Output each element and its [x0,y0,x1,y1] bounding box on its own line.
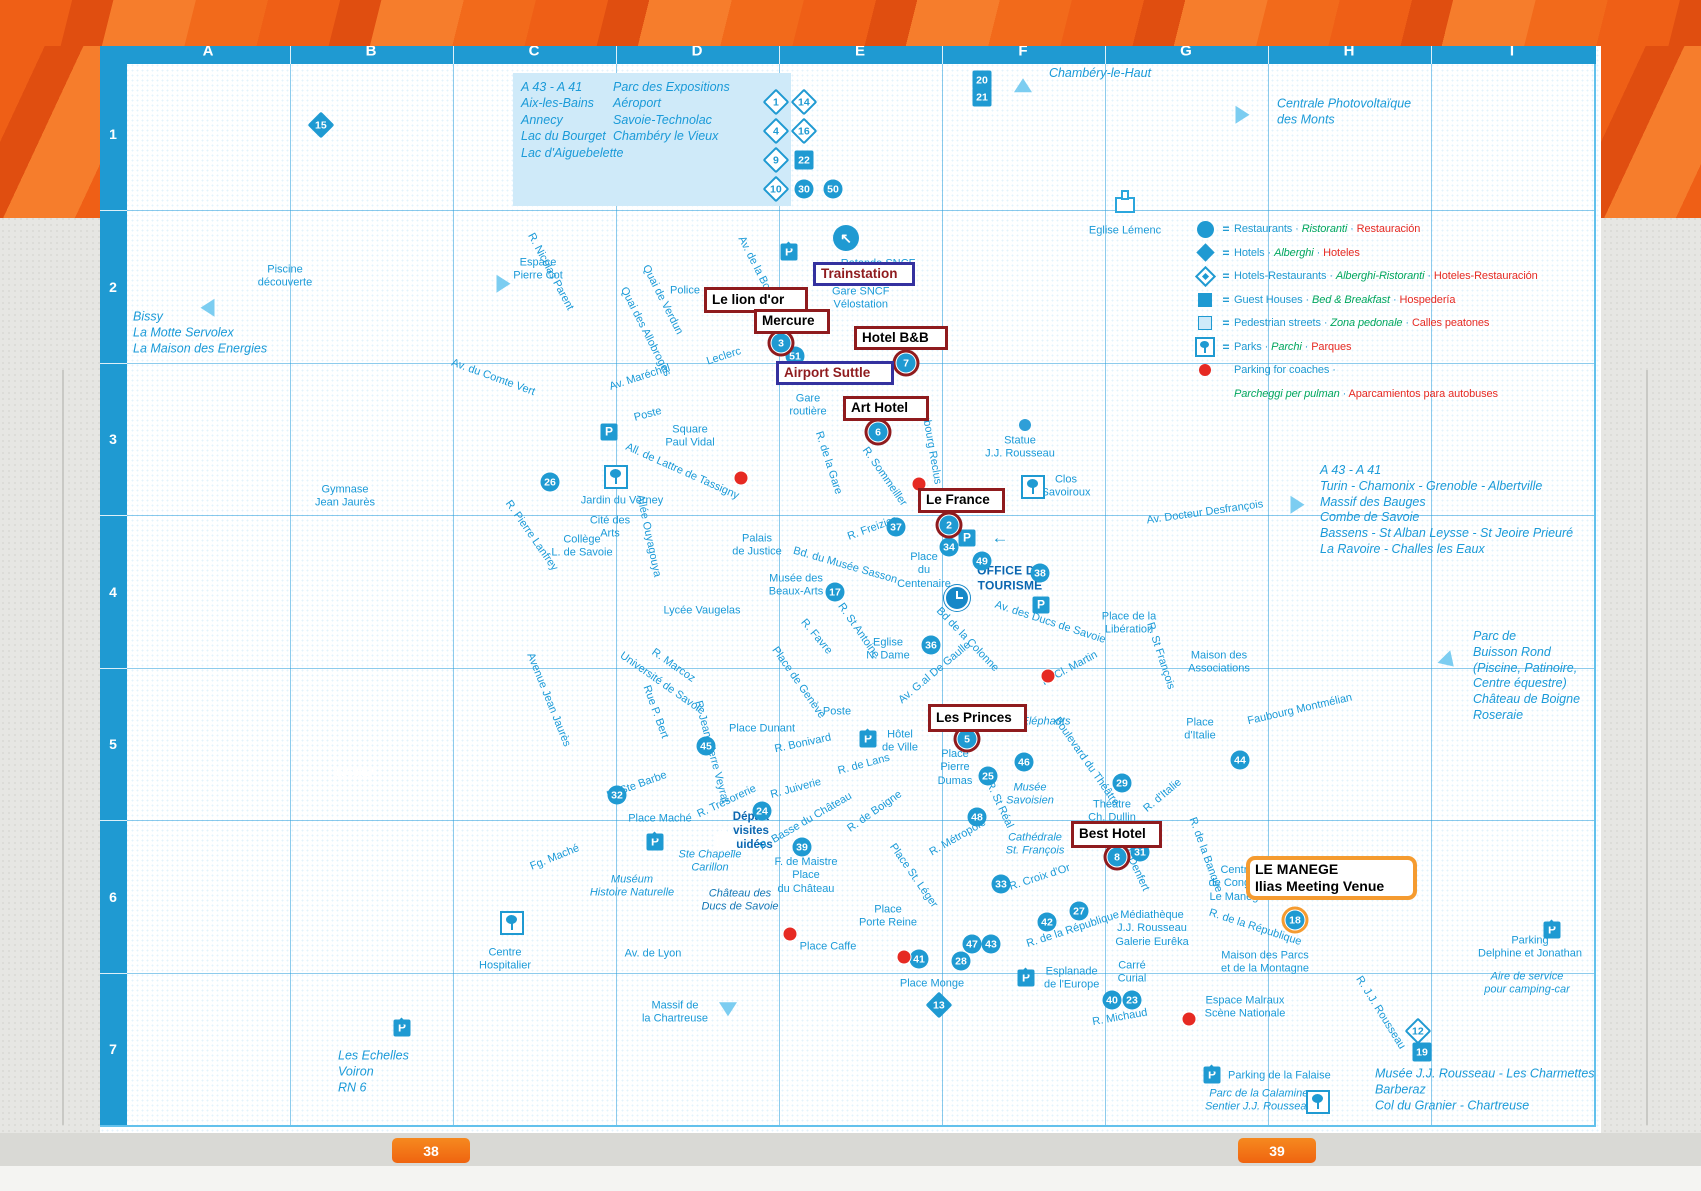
marker-25: 25 [979,767,998,786]
footer-bottom [0,1166,1701,1191]
coach-parking-dot [897,950,912,965]
marker-36: 36 [922,636,941,655]
legend-text: Hotels-Restaurants · Alberghi-Ristoranti… [1234,270,1538,282]
map-label: Statue J.J. Rousseau [985,435,1055,462]
marker-46: 46 [1015,753,1034,772]
grid-row-5: 5 [109,736,117,752]
map-label: Gare SNCF Vélostation [832,286,889,313]
map-label: A 43 - A 41 Turin - Chamonix - Grenoble … [1320,463,1573,558]
parking-icon: P [959,530,976,547]
map-label: Muséum Histoire Naturelle [590,874,674,901]
rotonde-arrow-icon: ↖ [833,225,859,251]
annotation-hotel-b-b[interactable]: Hotel B&B [854,326,948,350]
direction-arrow-icon [1291,496,1314,514]
legend-item: =Hotels · Alberghi · Hoteles [1192,242,1360,264]
map-label: Eléphants [1022,715,1071,728]
map-label: Place d'Italie [1184,717,1215,744]
annotation-airport-suttle[interactable]: Airport Suttle [776,361,894,385]
grid-line [616,64,617,1125]
dot-red-glyph [1199,364,1211,376]
coach-parking-dot [1182,1012,1197,1027]
legend-item: =Parks · Parchi · Parques [1192,336,1351,358]
circle-glyph [1197,221,1214,238]
map-label: Aire de service pour camping-car [1484,971,1570,998]
sheet-edge [1594,38,1596,1125]
park-icon [1021,475,1045,499]
map-label: Musée Savoisien [1006,782,1054,809]
map-label: Château des Ducs de Savoie [701,888,778,915]
legend-equals: = [1218,340,1234,354]
grid-line [1431,64,1432,1125]
map-label: Place Monge [900,977,964,990]
marker-30: 30 [795,180,814,199]
map-label: Centrale Photovoltaïque des Monts [1277,96,1411,128]
map-label: Police [670,284,700,297]
coach-parking-dot [734,471,749,486]
map-label: Chambéry-le-Haut [1049,66,1151,82]
map-label: Place Dunant [729,722,795,735]
margin-line [62,370,64,1125]
map-label: Jardin du Verney [581,494,664,507]
grid-line [127,973,1594,974]
coach-parking-dot [783,927,798,942]
marker-22: 22 [795,151,814,170]
grid-row-separator [100,668,127,669]
direction-arrow-icon [1236,106,1259,124]
legend-item: Parcheggi per pulman · Aparcamientos par… [1192,383,1498,405]
map-sheet [100,33,1601,1133]
grid-line [453,64,454,1125]
legend-equals: = [1218,316,1234,330]
page-38-tab[interactable]: 38 [392,1138,470,1163]
marker-19: 19 [1413,1043,1432,1062]
legend-item: =Restaurants · Ristoranti · Restauración [1192,218,1420,240]
grid-row-4: 4 [109,584,117,600]
map-label: Parc de Buisson Rond (Piscine, Patinoire… [1473,629,1580,724]
grid-row-separator [100,210,127,211]
direction-arrow-icon [719,1002,737,1025]
footer-strip [0,1133,1701,1166]
park-icon [1192,337,1218,357]
map-label: Clos Savoiroux [1042,474,1091,501]
grid-row-7: 7 [109,1041,117,1057]
parking-icon: P [394,1020,411,1037]
map-label: Place Pierre Dumas [938,748,973,788]
direction-arrow-icon [1014,69,1032,92]
marker-45: 45 [697,737,716,756]
map-label: Gare routière [789,393,826,420]
marker-50: 50 [824,180,843,199]
annotation-le-manege[interactable]: LE MANEGE Ilias Meeting Venue [1246,856,1417,900]
map-label: Poste [823,705,851,718]
map-label: Gymnase Jean Jaurès [315,484,375,511]
annotation-best-hotel[interactable]: Best Hotel [1071,821,1162,848]
parking-icon: P [1033,597,1050,614]
grid-row-separator [100,515,127,516]
map-label: Eglise N. Dame [866,637,909,664]
map-label: Musée des Beaux-Arts [769,573,823,600]
marker-32: 32 [608,786,627,805]
map-label: Centre Hospitalier [479,947,531,974]
destinations-left: A 43 - A 41 Aix-les-Bains Annecy Lac du … [521,79,623,161]
legend-text: Parks · Parchi · Parques [1234,341,1351,353]
map-label: Esplanade de l'Europe [1044,966,1099,993]
parking-icon: P [647,834,664,851]
direction-arrow-icon [192,299,215,317]
marker-41: 41 [910,950,929,969]
legend-text: Pedestrian streets · Zona pedonale · Cal… [1234,317,1489,329]
legend-text: Restaurants · Ristoranti · Restauración [1234,223,1420,235]
square-icon [1192,293,1218,307]
park-icon [500,911,524,935]
grid-line [942,64,943,1125]
annotation-les-princes[interactable]: Les Princes [928,704,1027,732]
marker-47: 47 [963,935,982,954]
square-l-glyph [1198,316,1212,330]
map-label: Lycée Vaugelas [663,604,740,617]
map-label: Place Caffe [800,940,857,953]
marker-44: 44 [1231,751,1250,770]
statue-icon [1019,419,1031,431]
church-icon [716,834,736,850]
map-label: Place Porte Reine [859,904,917,931]
grid-row-3: 3 [109,431,117,447]
marker-37: 37 [887,518,906,537]
grid-line [127,210,1594,211]
grid-row-2: 2 [109,279,117,295]
marker-29: 29 [1113,774,1132,793]
map-label: Parking Delphine et Jonathan [1478,935,1582,962]
marker-8: 8 [1108,848,1127,867]
legend-text: Hotels · Alberghi · Hoteles [1234,247,1360,259]
legend-item: =Guest Houses · Bed & Breakfast · Hosped… [1192,289,1455,311]
grid-row-separator [100,973,127,974]
marker-3: 3 [772,334,791,353]
legend-item: Parking for coaches · [1192,359,1336,381]
map-label: Les Echelles Voiron RN 6 [338,1048,409,1095]
map-label: Piscine découverte [258,264,312,291]
map-label: Massif de la Chartreuse [642,1000,708,1027]
annotation-le-france[interactable]: Le France [918,488,1005,513]
circle-icon [1192,221,1218,238]
legend-equals: = [1218,222,1234,236]
marker-18: 18 [1286,911,1305,930]
legend-equals: = [1218,269,1234,283]
marker-6: 6 [869,423,888,442]
square-l-icon [1192,316,1218,330]
marker-34: 34 [940,538,959,557]
square-glyph [1198,293,1212,307]
dot-red-icon [1192,364,1218,376]
annotation-mercure[interactable]: Mercure [754,309,830,334]
marker-43: 43 [982,935,1001,954]
grid-row-separator [100,820,127,821]
parking-icon: P [1204,1067,1221,1084]
park-icon [604,465,628,489]
scanned-city-map-page: A 43 - A 41 Aix-les-Bains Annecy Lac du … [0,0,1701,1191]
direction-arrow-icon [497,275,520,293]
map-label: Ste Chapelle Carillon [679,849,742,876]
map-label: Maison des Parcs et de la Montagne [1221,950,1309,977]
marker-38: 38 [1031,564,1050,583]
marker-49: 49 [973,552,992,571]
legend-text: Guest Houses · Bed & Breakfast · Hospede… [1234,294,1455,306]
parking-icon: P [860,731,877,748]
grid-line [127,668,1594,669]
marker-33: 33 [992,875,1011,894]
marker-48: 48 [968,808,987,827]
legend-item: =Hotels-Restaurants · Alberghi-Ristorant… [1192,265,1538,287]
marker-23: 23 [1123,991,1142,1010]
grid-line [290,64,291,1125]
marker-2: 2 [940,516,959,535]
destinations-right: Parc des Expositions Aéroport Savoie-Tec… [613,79,730,145]
map-label: Maison des Associations [1188,650,1250,677]
parking-icon: P [1544,922,1561,939]
marker-27: 27 [1070,902,1089,921]
map-label: F. de Maistre Place du Château [775,856,838,896]
left-arrow-icon: ← [992,528,1009,548]
map-label: Place du Centenaire [897,551,951,591]
map-label: Musée J.J. Rousseau - Les Charmettes Bar… [1375,1066,1595,1113]
map-label: Square Paul Vidal [665,424,714,451]
coach-parking-dot [1041,669,1056,684]
marker-42: 42 [1038,913,1057,932]
margin-line [1646,370,1648,1125]
church-icon [1115,197,1135,213]
sheet-edge [100,1125,1596,1127]
map-label: Espace Malraux Scène Nationale [1205,995,1286,1022]
diamond-glyph [1196,243,1214,261]
map-label: Carré Curial [1118,960,1147,987]
legend-text: Parking for coaches · [1234,364,1336,376]
parking-icon: P [601,424,618,441]
marker-17: 17 [826,583,845,602]
marker-7: 7 [897,354,916,373]
map-label: NORD [336,764,374,780]
diamond-icon [1192,246,1218,259]
legend-text: Parcheggi per pulman · Aparcamientos par… [1234,388,1498,400]
map-label: Eglise Lémenc [1089,224,1161,237]
marker-26: 26 [541,473,560,492]
marker-24: 24 [753,802,772,821]
grid-row-separator [100,363,127,364]
map-label: Médiathèque J.J. Rousseau Galerie Eurêka [1115,909,1188,949]
grid-row-6: 6 [109,889,117,905]
marker-21: 21 [973,88,992,107]
clock-icon [944,585,970,611]
annotation-trainstation[interactable]: Trainstation [813,262,915,286]
parking-icon: P [781,244,798,261]
park-glyph [1195,337,1215,357]
legend-item: =Pedestrian streets · Zona pedonale · Ca… [1192,312,1489,334]
marker-5: 5 [958,730,977,749]
marker-40: 40 [1103,991,1122,1010]
map-label: Cathédrale St. François [1006,832,1065,859]
marker-39: 39 [793,838,812,857]
map-label: Av. de Lyon [625,947,682,960]
page-39-tab[interactable]: 39 [1238,1138,1316,1163]
legend-equals: = [1218,246,1234,260]
map-label: Parking de la Falaise [1228,1069,1331,1082]
diamond-o-icon [1192,269,1218,284]
marker-28: 28 [952,952,971,971]
parking-icon: P [1018,970,1035,987]
grid-row-1: 1 [109,126,117,142]
diamond-o-glyph [1194,265,1215,286]
map-label: Collège L. de Savoie [551,534,612,561]
orange-top-band [0,0,1701,46]
legend-equals: = [1218,293,1234,307]
park-icon [1306,1090,1330,1114]
annotation-art-hotel[interactable]: Art Hotel [843,396,929,421]
map-label: Parc de la Calamine Sentier J.J. Roussea… [1205,1088,1313,1115]
map-label: Palais de Justice [732,533,782,560]
grid-line [1105,64,1106,1125]
